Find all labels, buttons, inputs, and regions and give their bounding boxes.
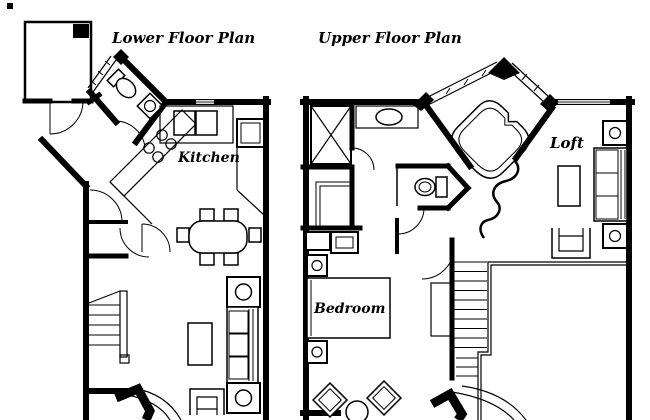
bathroom [303,103,468,234]
bedroom: Bedroom [306,220,454,420]
end-table-lamp [603,224,627,248]
corner-tub [445,95,536,186]
end-table-lamp [227,277,260,307]
kitchen-sink [160,106,233,143]
end-table-lamp [603,121,627,145]
bay-window-upper [432,386,526,420]
nightstand-lamp [307,255,327,276]
stove-burner [153,152,163,162]
stove-burner [157,130,167,140]
closet [303,172,360,228]
dining-chair [177,228,189,242]
entry-room [25,22,91,134]
dining-chair [200,253,214,265]
lower-plan-title: Lower Floor Plan [111,29,255,47]
bedroom-label: Bedroom [313,301,385,317]
loft: Loft [549,98,627,258]
stove-burner [166,139,176,149]
nightstand-lamp [307,341,327,363]
refrigerator [237,119,264,147]
wc-door-arc [398,208,424,234]
lower-floor-plan: Lower Floor Plan [7,3,268,420]
shower-x [311,106,351,164]
loft-label: Loft [549,134,584,152]
dining-area [177,209,261,265]
toilet [415,177,447,197]
loft-window [558,98,610,106]
dining-chair [249,228,261,242]
coffee-table [188,323,212,365]
dining-table [189,221,247,253]
floor-plan-drawing: Lower Floor Plan [0,0,650,420]
armchair [190,389,224,415]
tub-windows [424,62,549,105]
vanity-sink [356,106,418,128]
powder-room [88,49,166,147]
open-to-below-rail [478,262,627,420]
bedroom-door-arc [422,247,454,279]
dining-chair [224,209,238,221]
water-closet [397,166,468,234]
accent-chair [367,381,401,415]
stove [110,110,196,224]
upper-floor-plan: Upper Floor Plan [303,29,632,420]
round-table [346,401,368,420]
floor-plan-page: Lower Floor Plan [0,0,650,420]
sofa [227,307,258,383]
stove-burner [144,143,154,153]
alcove-apex [488,57,520,80]
dresser [306,232,358,253]
armchair [552,228,590,258]
kitchen: Kitchen [110,106,264,224]
end-table-lamp [227,383,260,413]
kitchen-label: Kitchen [177,150,240,166]
dining-chair [200,209,214,221]
drawing-crop-mark [7,3,13,9]
sofa [594,148,627,221]
tub-alcove [413,57,559,238]
coffee-table [558,166,580,206]
staircase-lower [89,291,129,363]
curved-wall [481,160,519,238]
stair-landing [431,283,452,336]
upper-plan-title: Upper Floor Plan [318,29,462,47]
kitchen-counter-right [237,147,264,215]
kitchen-window [196,98,214,106]
bathroom-door-arc [352,148,374,170]
dining-chair [224,253,238,265]
bay-window-lower [116,388,181,420]
living-area [188,277,260,415]
